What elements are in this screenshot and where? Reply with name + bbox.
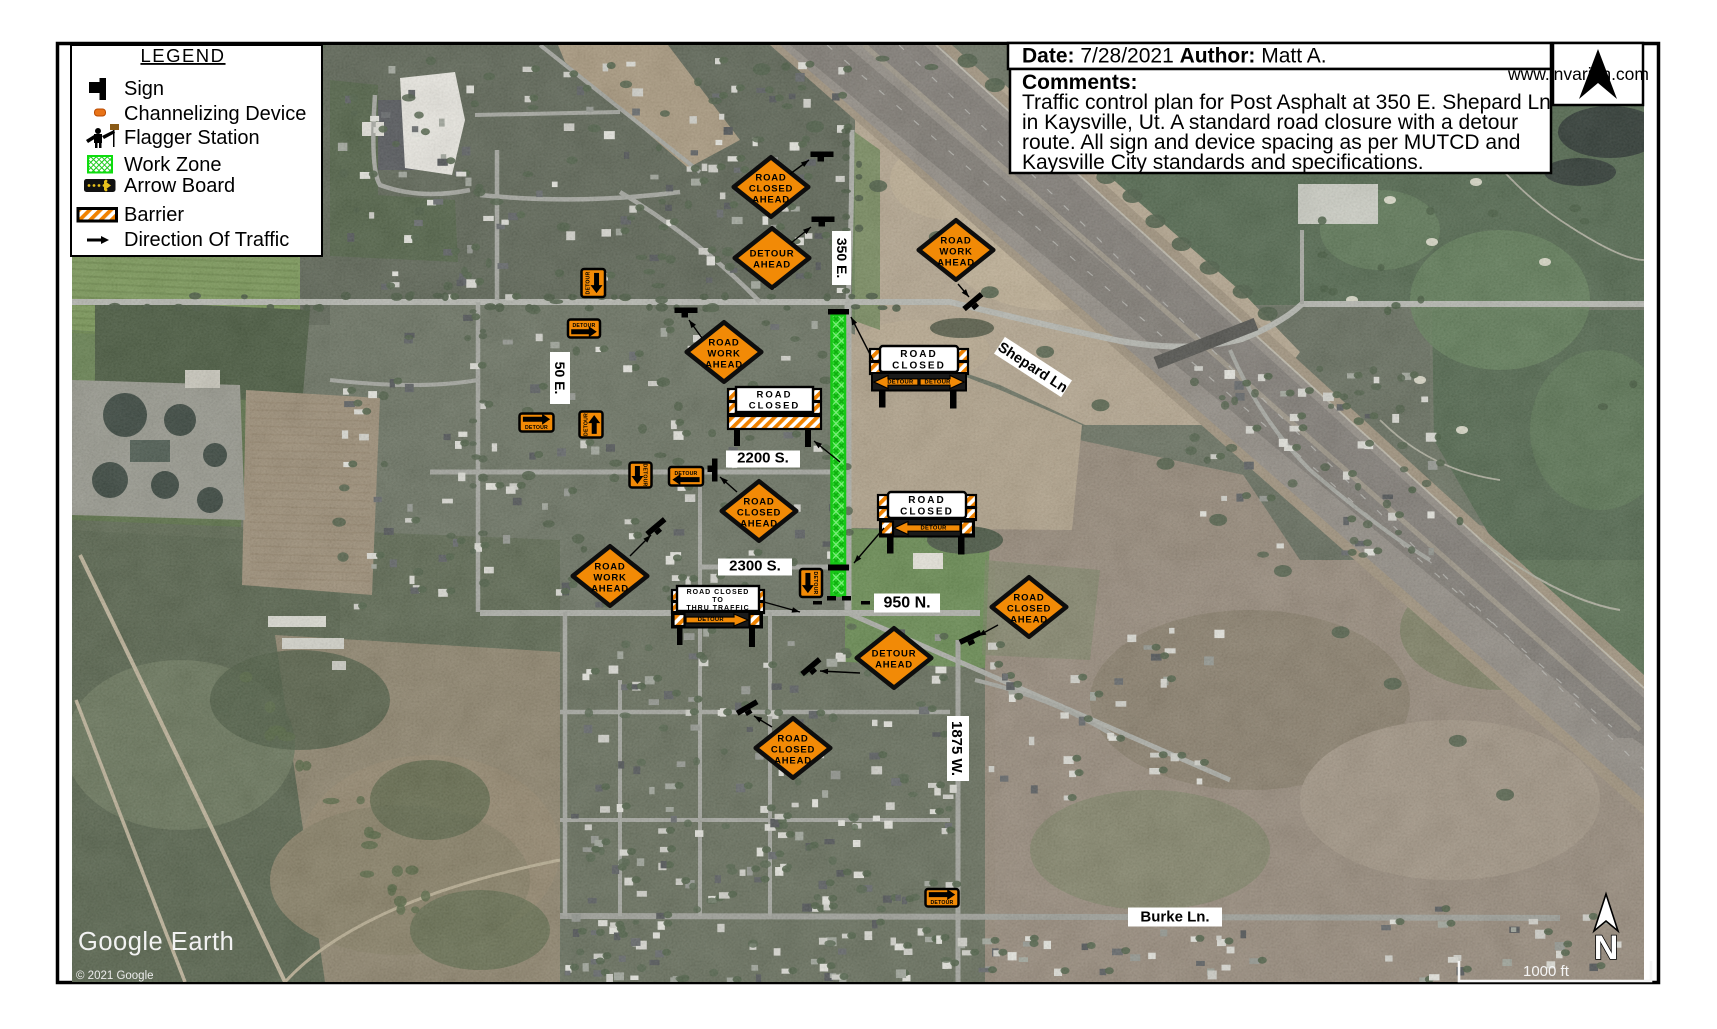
svg-text:DETOUR: DETOUR [872, 649, 917, 660]
svg-text:ROAD: ROAD [1013, 593, 1044, 604]
svg-text:ROAD: ROAD [908, 495, 945, 506]
svg-text:CLOSED: CLOSED [900, 507, 954, 518]
svg-text:TO: TO [712, 597, 724, 604]
svg-text:ROAD: ROAD [743, 497, 774, 508]
svg-text:ROAD: ROAD [757, 390, 793, 401]
svg-text:Date: 7/28/2021 Author: Matt A: Date: 7/28/2021 Author: Matt A. [1022, 45, 1327, 68]
svg-text:Channelizing Device: Channelizing Device [124, 103, 306, 125]
svg-text:DETOUR: DETOUR [750, 249, 795, 260]
svg-text:ROAD: ROAD [594, 562, 625, 573]
svg-text:1875 W.: 1875 W. [948, 721, 965, 776]
svg-text:N: N [1594, 929, 1619, 967]
svg-text:ROAD: ROAD [940, 236, 971, 247]
svg-text:ROAD: ROAD [755, 173, 786, 184]
svg-text:AHEAD: AHEAD [740, 519, 778, 530]
svg-text:50 E.: 50 E. [552, 362, 568, 395]
svg-text:DETOUR: DETOUR [921, 525, 948, 531]
svg-text:Kaysville City standards and s: Kaysville City standards and specificati… [1022, 151, 1424, 174]
svg-text:350 E.: 350 E. [834, 238, 850, 278]
svg-text:DETOUR: DETOUR [586, 271, 592, 294]
svg-text:AHEAD: AHEAD [752, 195, 790, 206]
svg-text:WORK: WORK [939, 247, 972, 258]
svg-text:Google Earth: Google Earth [78, 928, 234, 956]
svg-text:DETOUR: DETOUR [642, 463, 648, 486]
svg-text:DETOUR: DETOUR [698, 617, 725, 623]
svg-text:CLOSED: CLOSED [771, 745, 815, 756]
svg-text:ROAD CLOSED: ROAD CLOSED [687, 589, 750, 596]
svg-text:AHEAD: AHEAD [774, 756, 812, 767]
svg-text:Burke Ln.: Burke Ln. [1140, 909, 1209, 926]
svg-text:AHEAD: AHEAD [875, 660, 913, 671]
svg-text:Flagger Station: Flagger Station [124, 127, 260, 149]
svg-text:WORK: WORK [707, 349, 740, 360]
svg-text:AHEAD: AHEAD [937, 258, 975, 269]
svg-text:2300 S.: 2300 S. [729, 558, 781, 575]
svg-text:AHEAD: AHEAD [753, 260, 791, 271]
svg-text:www.invarion.com: www.invarion.com [1507, 64, 1649, 84]
svg-text:WORK: WORK [593, 573, 626, 584]
svg-text:Barrier: Barrier [124, 204, 184, 226]
svg-text:ROAD: ROAD [708, 338, 739, 349]
svg-text:ROAD: ROAD [777, 734, 808, 745]
svg-text:DETOUR: DETOUR [525, 425, 548, 431]
svg-text:DETOUR: DETOUR [930, 900, 953, 906]
svg-text:CLOSED: CLOSED [749, 184, 793, 195]
svg-text:© 2021 Google: © 2021 Google [76, 970, 154, 982]
svg-text:DETOUR: DETOUR [572, 323, 595, 329]
svg-text:950 N.: 950 N. [883, 595, 930, 612]
svg-text:Direction Of Traffic: Direction Of Traffic [124, 229, 289, 251]
svg-text:2200 S.: 2200 S. [737, 450, 789, 467]
svg-text:DETOUR: DETOUR [812, 571, 818, 594]
svg-text:DETOUR: DETOUR [584, 413, 590, 436]
svg-text:CLOSED: CLOSED [749, 401, 801, 412]
svg-text:Arrow Board: Arrow Board [124, 175, 235, 197]
svg-text:LEGEND: LEGEND [140, 45, 225, 66]
svg-text:Sign: Sign [124, 78, 164, 100]
svg-text:Work Zone: Work Zone [124, 154, 221, 176]
svg-text:THRU TRAFFIC: THRU TRAFFIC [686, 605, 749, 612]
svg-text:ROAD: ROAD [900, 349, 937, 360]
svg-text:AHEAD: AHEAD [705, 360, 743, 371]
svg-text:CLOSED: CLOSED [737, 508, 781, 519]
svg-text:DETOUR: DETOUR [925, 379, 952, 385]
svg-text:AHEAD: AHEAD [591, 584, 629, 595]
svg-text:CLOSED: CLOSED [1007, 604, 1051, 615]
svg-text:1000 ft: 1000 ft [1523, 963, 1570, 980]
svg-text:AHEAD: AHEAD [1010, 615, 1048, 626]
svg-text:CLOSED: CLOSED [892, 361, 946, 372]
svg-text:DETOUR: DETOUR [887, 379, 914, 385]
